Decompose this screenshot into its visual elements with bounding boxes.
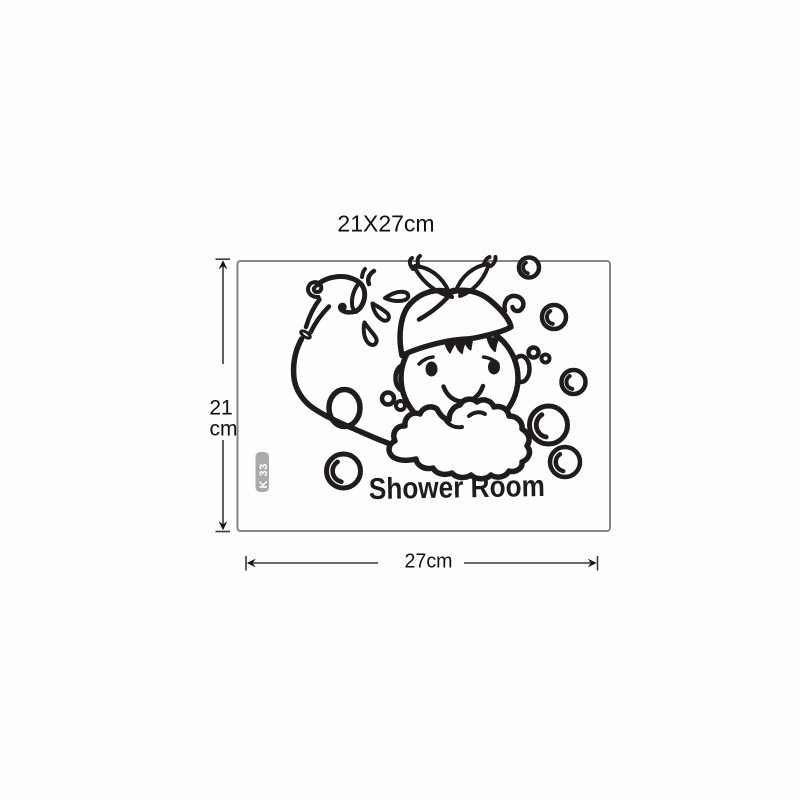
svg-text:K 33: K 33 <box>258 463 270 488</box>
svg-text:Shower Room: Shower Room <box>369 470 546 506</box>
svg-text:21X27cm: 21X27cm <box>337 211 434 237</box>
svg-text:21: 21 <box>209 397 232 420</box>
svg-text:27cm: 27cm <box>405 551 453 573</box>
svg-text:cm: cm <box>210 418 238 441</box>
